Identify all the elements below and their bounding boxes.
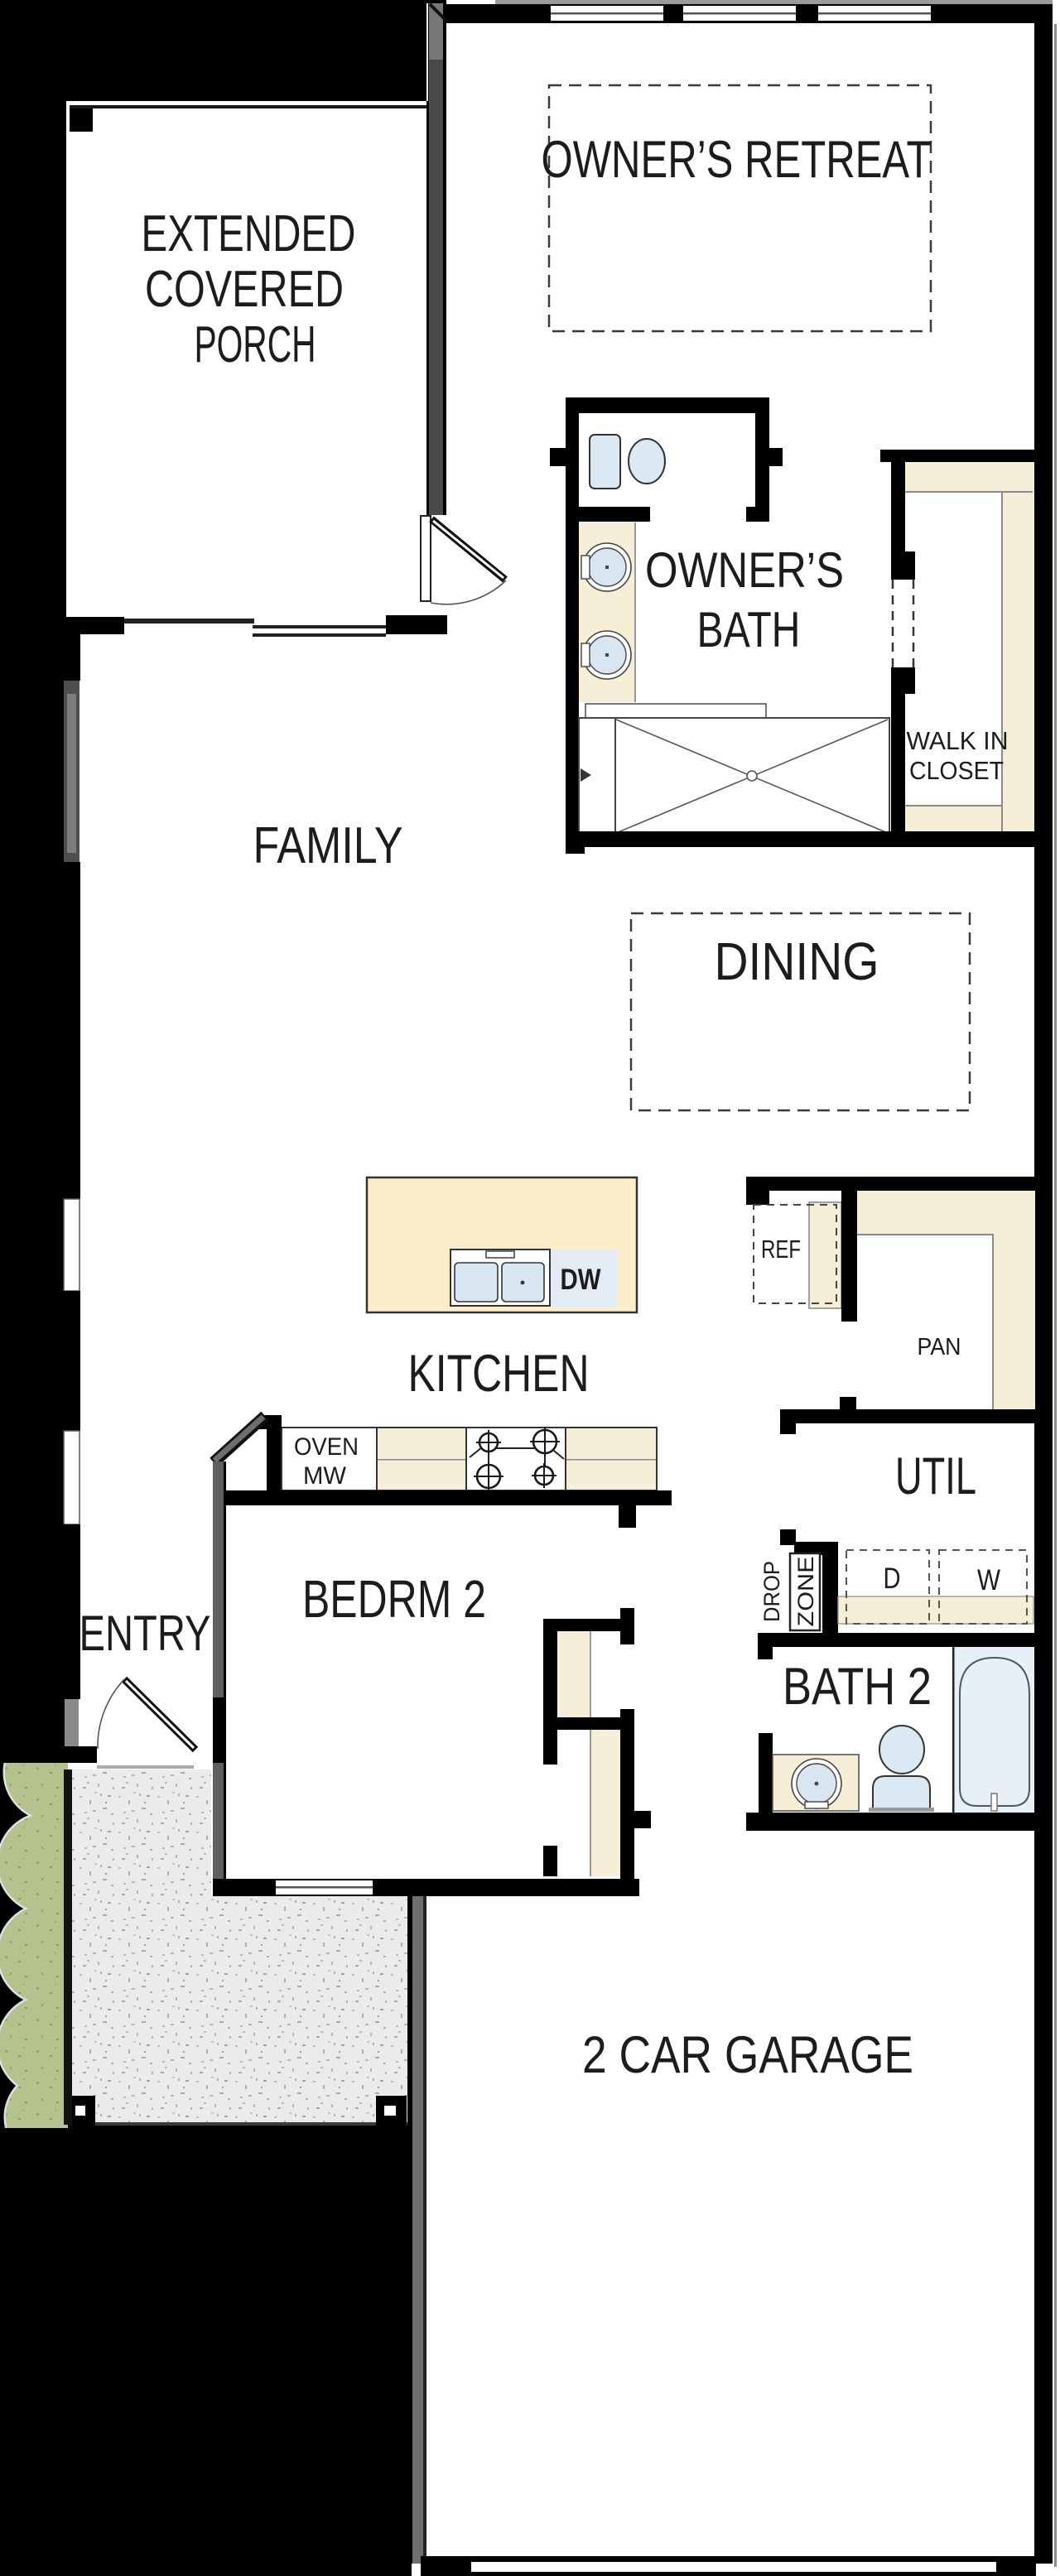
svg-text:ZONE: ZONE (793, 1557, 818, 1627)
svg-text:OVEN: OVEN (294, 1433, 359, 1461)
svg-text:KITCHEN: KITCHEN (408, 1345, 590, 1403)
svg-text:DROP: DROP (759, 1561, 784, 1622)
svg-text:2 CAR GARAGE: 2 CAR GARAGE (582, 2026, 913, 2084)
svg-text:MW: MW (303, 1462, 347, 1490)
svg-text:OWNER’S: OWNER’S (645, 542, 844, 598)
svg-text:ENTRY: ENTRY (79, 1606, 211, 1661)
svg-text:W: W (977, 1564, 1000, 1596)
svg-text:BEDRM 2: BEDRM 2 (302, 1569, 486, 1629)
svg-text:DW: DW (561, 1264, 601, 1296)
svg-text:DINING: DINING (715, 932, 879, 991)
svg-text:UTIL: UTIL (895, 1447, 976, 1505)
svg-text:PORCH: PORCH (195, 316, 316, 373)
svg-text:FAMILY: FAMILY (253, 817, 403, 874)
svg-text:PAN: PAN (918, 1334, 961, 1360)
svg-text:REF: REF (761, 1235, 801, 1264)
svg-text:WALK IN: WALK IN (907, 726, 1009, 755)
svg-text:COVERED: COVERED (145, 261, 344, 318)
svg-text:EXTENDED: EXTENDED (142, 205, 356, 262)
svg-text:BATH: BATH (697, 602, 801, 657)
svg-text:CLOSET: CLOSET (909, 756, 1004, 785)
svg-text:D: D (884, 1562, 901, 1595)
svg-text:OWNER’S RETREAT: OWNER’S RETREAT (542, 131, 932, 189)
svg-text:BATH 2: BATH 2 (783, 1658, 932, 1716)
